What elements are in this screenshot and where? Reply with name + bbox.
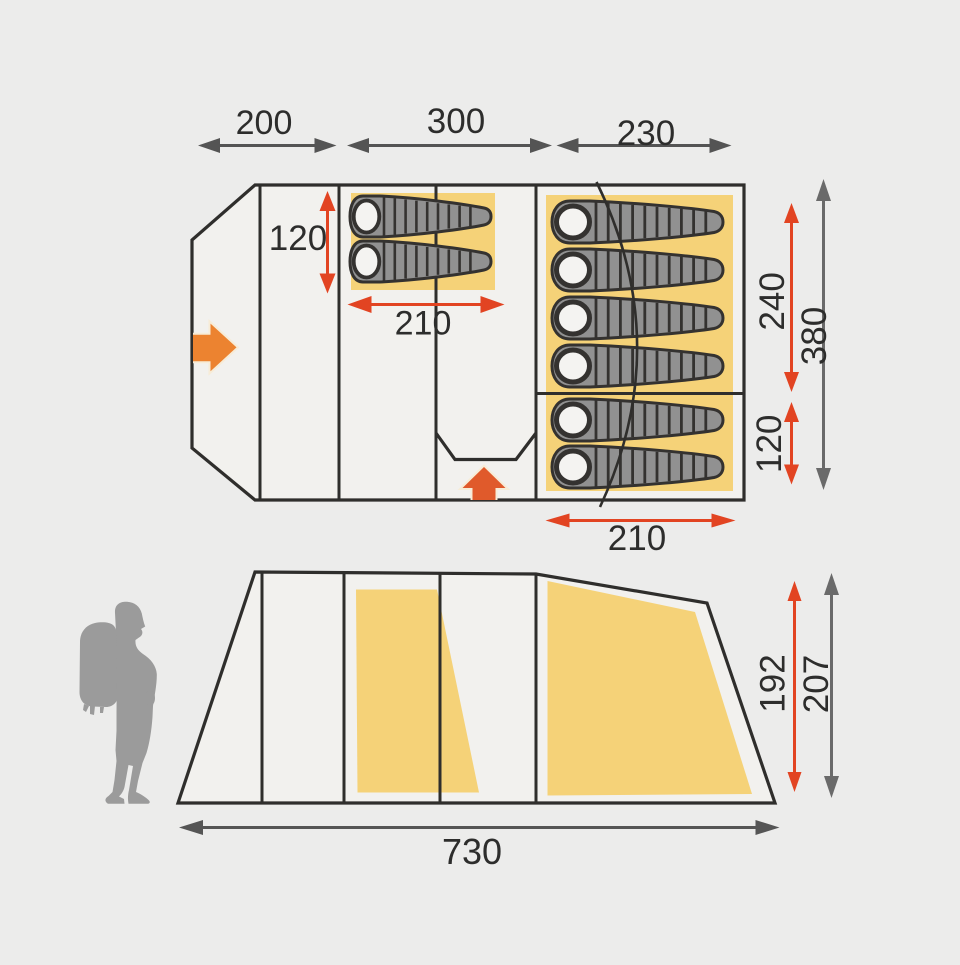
svg-text:240: 240 — [753, 272, 792, 330]
svg-text:210: 210 — [608, 519, 666, 558]
svg-text:207: 207 — [797, 655, 836, 713]
svg-text:120: 120 — [269, 219, 327, 258]
svg-text:230: 230 — [617, 114, 675, 153]
svg-text:120: 120 — [750, 415, 789, 473]
svg-text:210: 210 — [395, 305, 452, 343]
svg-text:730: 730 — [442, 831, 502, 872]
svg-text:192: 192 — [754, 654, 793, 712]
svg-text:380: 380 — [795, 307, 834, 365]
svg-text:300: 300 — [427, 102, 485, 141]
svg-text:200: 200 — [236, 104, 293, 142]
